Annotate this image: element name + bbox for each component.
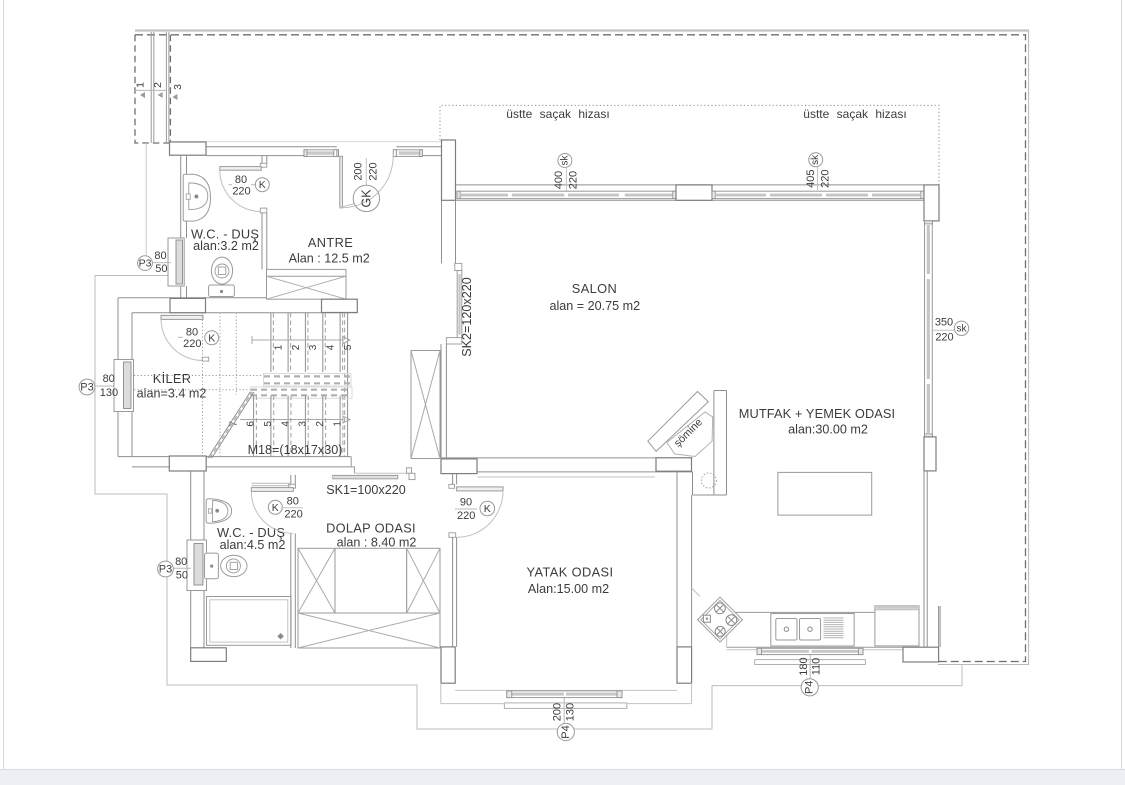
svg-text:alan : 8.40 m2: alan : 8.40 m2 [337, 535, 417, 549]
svg-text:3: 3 [308, 344, 319, 350]
svg-text:ANTRE: ANTRE [308, 235, 353, 250]
svg-text:80: 80 [154, 250, 166, 262]
svg-text:üstte saçak hizası: üstte saçak hizası [506, 107, 609, 121]
svg-text:80: 80 [287, 496, 299, 508]
svg-text:sk: sk [559, 155, 570, 166]
svg-text:220: 220 [284, 509, 302, 521]
svg-text:MUTFAK + YEMEK ODASI: MUTFAK + YEMEK ODASI [739, 406, 895, 421]
svg-text:üstte saçak hizası: üstte saçak hizası [803, 107, 906, 121]
svg-text:80: 80 [235, 174, 247, 186]
svg-text:80: 80 [186, 326, 198, 338]
svg-text:5: 5 [343, 344, 354, 350]
svg-text:KİLER: KİLER [153, 371, 192, 386]
svg-text:200: 200 [353, 162, 365, 180]
svg-text:2: 2 [291, 344, 302, 350]
svg-text:50: 50 [176, 569, 188, 581]
svg-text:sk: sk [810, 154, 821, 165]
svg-text:SK2=120x220: SK2=120x220 [460, 277, 474, 356]
svg-text:P4: P4 [560, 725, 572, 738]
svg-text:Alan:15.00 m2: Alan:15.00 m2 [528, 582, 609, 596]
svg-text:1: 1 [274, 344, 285, 350]
svg-text:80: 80 [103, 373, 115, 385]
svg-text:130: 130 [565, 703, 577, 721]
svg-text:2: 2 [315, 421, 326, 427]
svg-text:alan=3.4 m2: alan=3.4 m2 [137, 387, 207, 401]
svg-text:alan = 20.75 m2: alan = 20.75 m2 [549, 299, 640, 313]
svg-text:M18=(18x17x30): M18=(18x17x30) [248, 443, 343, 457]
svg-text:3: 3 [298, 421, 309, 427]
svg-text:alan:4.5 m2: alan:4.5 m2 [220, 538, 286, 552]
svg-text:220: 220 [183, 338, 201, 350]
svg-text:4: 4 [326, 344, 337, 350]
svg-text:220: 220 [820, 170, 832, 188]
svg-text:220: 220 [568, 171, 580, 189]
svg-text:P4: P4 [804, 681, 816, 694]
svg-text:3: 3 [172, 84, 184, 90]
svg-text:220: 220 [935, 331, 953, 343]
svg-text:6: 6 [246, 421, 257, 427]
svg-text:K: K [259, 179, 266, 191]
svg-text:4: 4 [280, 421, 291, 427]
svg-text:350: 350 [935, 316, 953, 328]
svg-text:alan:30.00 m2: alan:30.00 m2 [788, 422, 868, 436]
svg-text:220: 220 [457, 510, 475, 522]
svg-text:2: 2 [152, 82, 164, 88]
svg-text:1: 1 [332, 421, 343, 427]
svg-text:DOLAP ODASI: DOLAP ODASI [326, 521, 416, 536]
svg-text:90: 90 [460, 496, 472, 508]
svg-text:405: 405 [805, 170, 817, 188]
svg-text:1: 1 [135, 82, 147, 88]
svg-text:K: K [272, 502, 279, 514]
svg-text:400: 400 [553, 171, 565, 189]
svg-text:K: K [208, 332, 215, 344]
svg-text:alan:3.2 m2: alan:3.2 m2 [193, 239, 259, 253]
svg-text:220: 220 [368, 162, 380, 180]
svg-text:YATAK ODASI: YATAK ODASI [527, 565, 614, 580]
svg-text:110: 110 [811, 658, 823, 676]
svg-text:P3: P3 [159, 564, 172, 576]
svg-text:200: 200 [552, 703, 564, 721]
svg-text:P3: P3 [80, 382, 93, 394]
svg-text:5: 5 [263, 421, 274, 427]
svg-text:130: 130 [100, 387, 118, 399]
svg-text:P3: P3 [139, 258, 152, 270]
svg-text:SALON: SALON [572, 281, 617, 296]
svg-text:80: 80 [175, 556, 187, 568]
svg-text:50: 50 [155, 263, 167, 275]
svg-text:GK: GK [359, 189, 373, 208]
svg-text:Alan : 12.5 m2: Alan : 12.5 m2 [289, 252, 370, 266]
svg-text:220: 220 [232, 186, 250, 198]
svg-text:sk: sk [957, 323, 968, 334]
svg-text:180: 180 [798, 657, 810, 675]
svg-text:SK1=100x220: SK1=100x220 [326, 483, 405, 497]
svg-text:K: K [484, 503, 491, 515]
